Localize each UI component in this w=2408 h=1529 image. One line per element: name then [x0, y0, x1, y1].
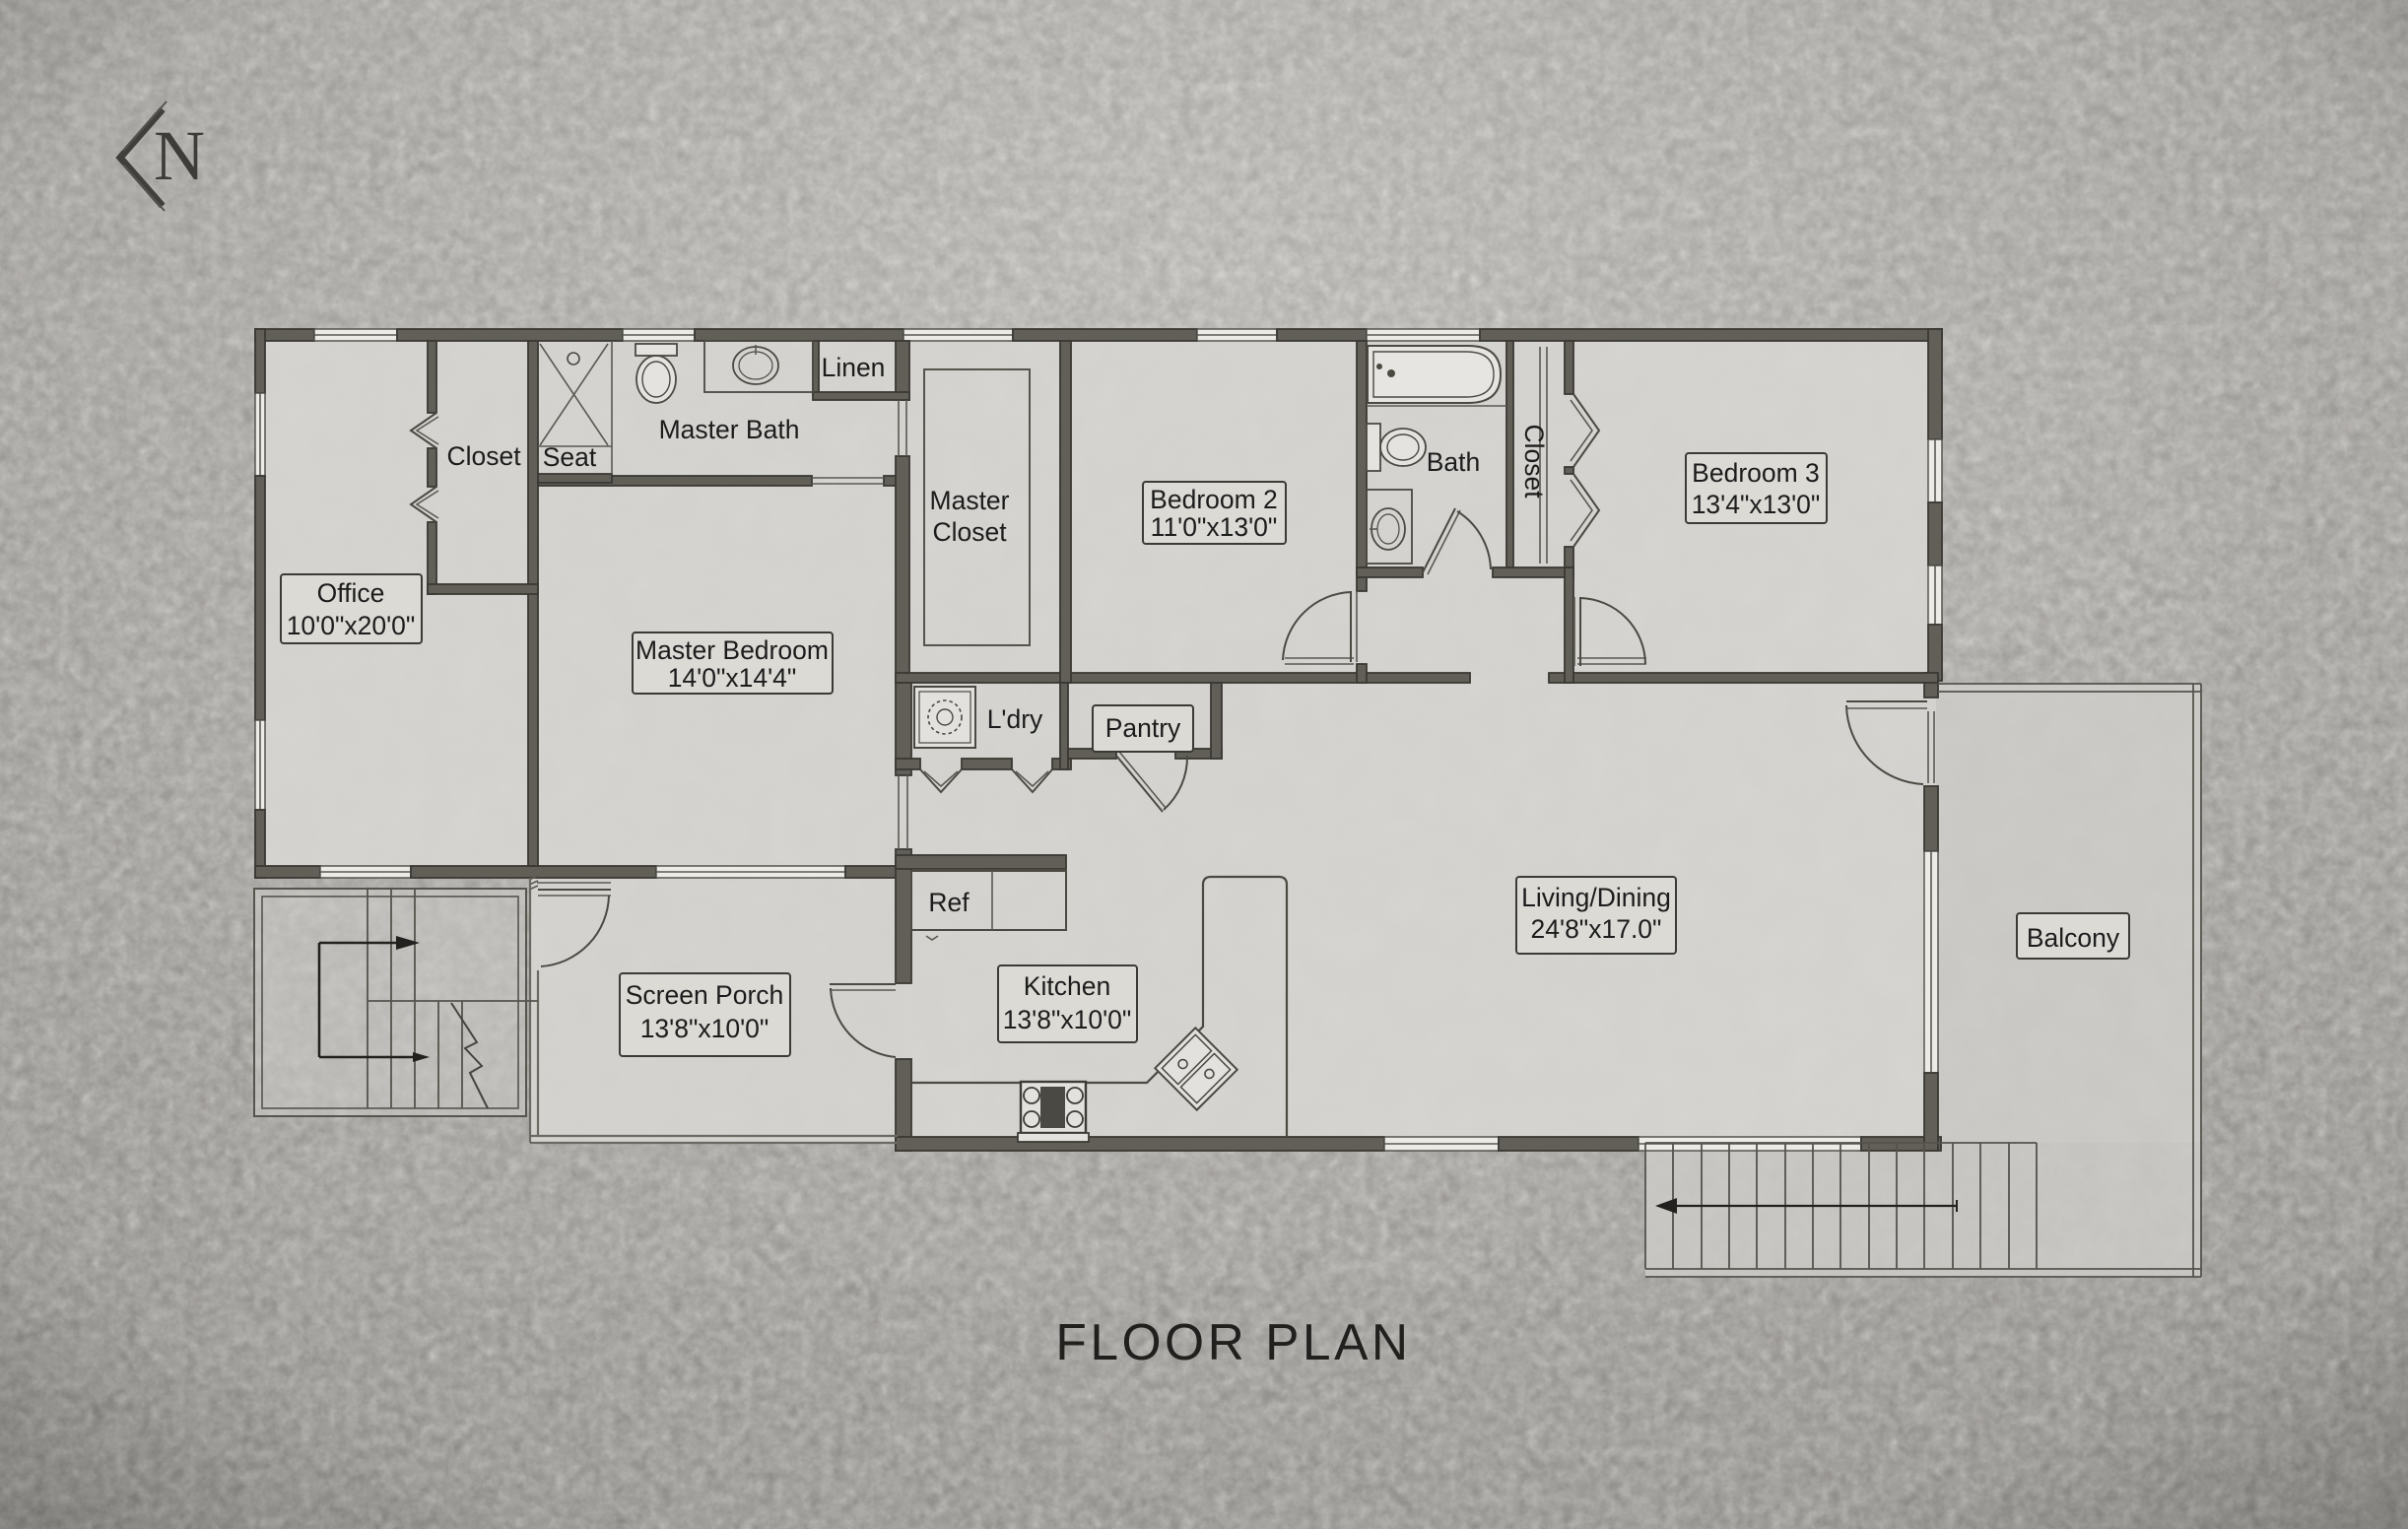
svg-text:L'dry: L'dry [987, 704, 1043, 734]
svg-text:Master Bedroom: Master Bedroom [635, 635, 829, 665]
svg-text:Closet: Closet [1519, 424, 1549, 499]
svg-text:Bedroom 3: Bedroom 3 [1692, 458, 1820, 488]
svg-text:Closet: Closet [446, 441, 521, 471]
svg-text:Master Bath: Master Bath [659, 415, 800, 444]
svg-text:Linen: Linen [822, 353, 886, 382]
svg-text:Kitchen: Kitchen [1024, 971, 1110, 1001]
svg-text:13'4"x13'0": 13'4"x13'0" [1692, 490, 1821, 519]
svg-text:Balcony: Balcony [2027, 923, 2120, 953]
svg-text:Closet: Closet [932, 517, 1007, 547]
svg-text:Ref: Ref [928, 888, 970, 917]
svg-text:Living/Dining: Living/Dining [1521, 883, 1671, 912]
svg-text:10'0"x20'0": 10'0"x20'0" [287, 611, 416, 640]
svg-text:13'8"x10'0": 13'8"x10'0" [1003, 1005, 1132, 1034]
svg-text:14'0"x14'4": 14'0"x14'4" [668, 663, 797, 693]
svg-text:Bath: Bath [1427, 447, 1481, 477]
svg-text:Master: Master [930, 486, 1010, 515]
svg-text:Pantry: Pantry [1105, 713, 1181, 743]
svg-text:N: N [154, 116, 205, 195]
svg-text:11'0"x13'0": 11'0"x13'0" [1151, 512, 1278, 542]
svg-text:FLOOR PLAN: FLOOR PLAN [1055, 1313, 1411, 1370]
svg-text:Office: Office [317, 578, 385, 608]
svg-text:Screen Porch: Screen Porch [626, 980, 784, 1010]
svg-text:Seat: Seat [543, 442, 597, 472]
svg-text:24'8"x17.0": 24'8"x17.0" [1531, 914, 1662, 944]
svg-text:13'8"x10'0": 13'8"x10'0" [640, 1014, 769, 1043]
svg-text:Bedroom 2: Bedroom 2 [1150, 485, 1278, 514]
